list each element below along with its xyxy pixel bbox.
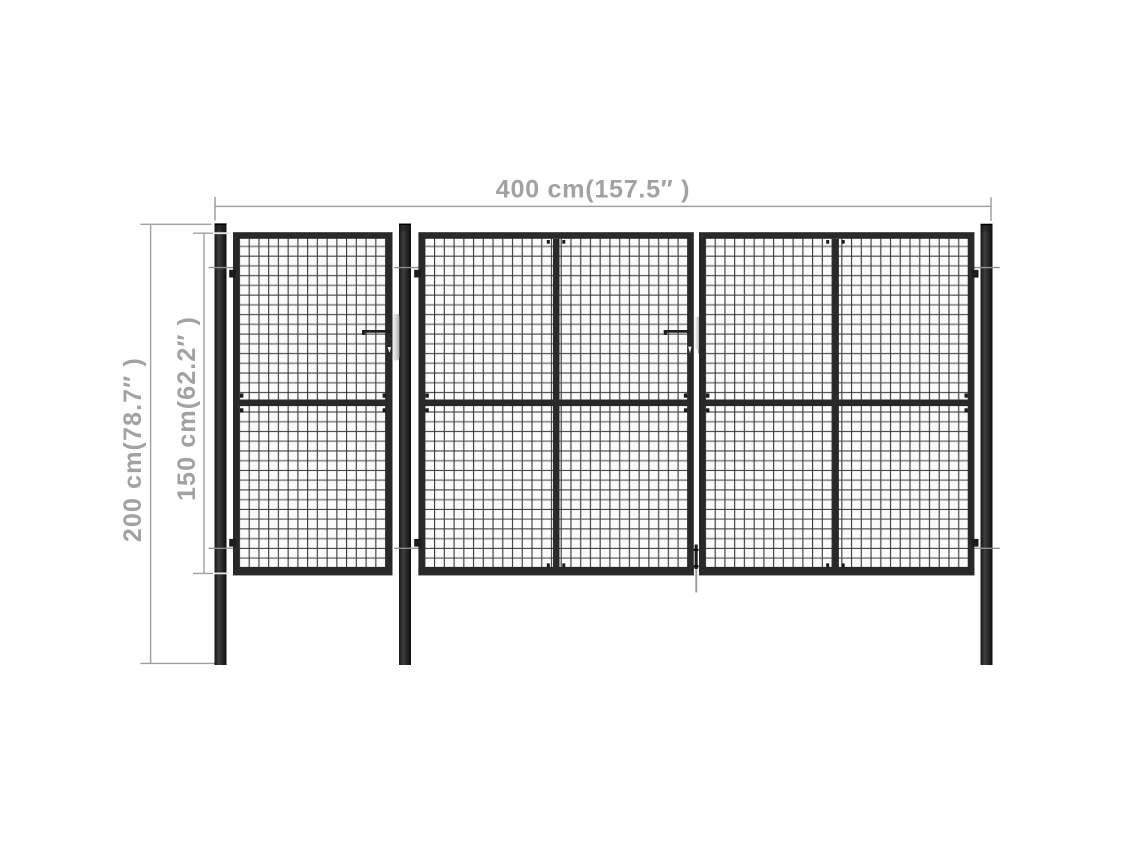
svg-text:400 cm(157.5″ ): 400 cm(157.5″ ) xyxy=(496,176,691,204)
svg-text:200 cm(78.7″ ): 200 cm(78.7″ ) xyxy=(119,357,147,542)
svg-text:150 cm(62.2″ ): 150 cm(62.2″ ) xyxy=(173,316,201,501)
